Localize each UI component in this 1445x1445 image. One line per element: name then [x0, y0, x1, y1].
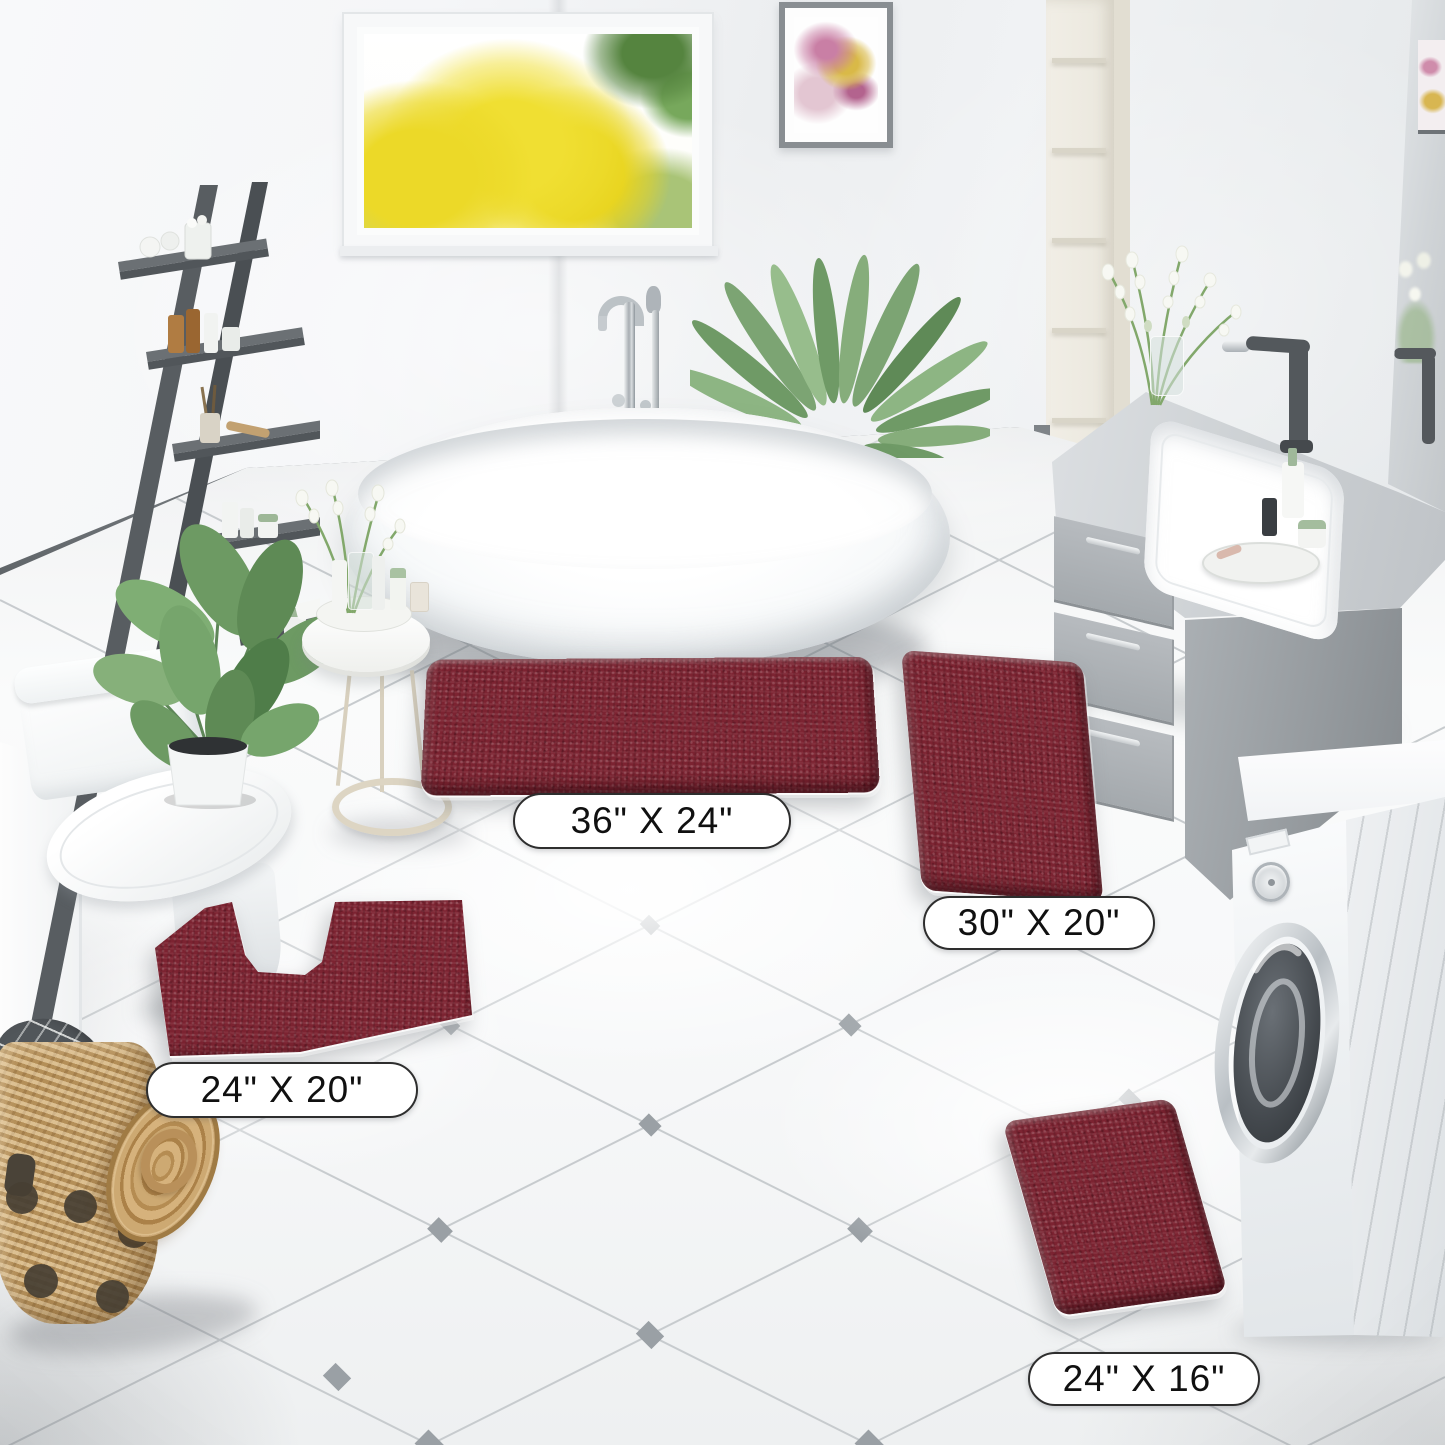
rug-36x24-surface — [420, 657, 880, 796]
rug-24x20-contour — [148, 888, 478, 1063]
cream-jar — [1298, 520, 1326, 548]
size-label-24x16: 24" X 16" — [1028, 1352, 1260, 1406]
size-label-36x24: 36" X 24" — [513, 793, 791, 849]
wall-art-painting — [794, 17, 878, 133]
window — [344, 14, 712, 248]
rug-24x20-surface — [148, 888, 478, 1063]
hand-shower-hose — [652, 310, 659, 422]
rug-30x20 — [901, 650, 1083, 888]
sink-faucet-body — [1289, 346, 1308, 448]
size-label-36x24-text: 36" X 24" — [571, 800, 734, 842]
plant-pot-pebbles — [169, 737, 247, 755]
size-label-30x20: 30" X 20" — [923, 896, 1155, 950]
mirror-faucet-reflection-body — [1422, 354, 1435, 444]
lotion-pump — [1288, 448, 1297, 466]
shelf-line — [1052, 58, 1106, 63]
washing-machine-side-panel — [1342, 795, 1445, 1337]
drawer-handle — [1086, 537, 1140, 555]
bathroom-product-scene: 36" X 24" 30" X 20" 24" X 20" 24" X 16" — [0, 0, 1445, 1445]
shelf-line — [1052, 418, 1106, 423]
table-vase — [348, 552, 374, 610]
size-label-24x20-text: 24" X 20" — [201, 1069, 364, 1111]
vanity-vase — [1150, 336, 1184, 396]
tub-faucet-outlet — [598, 316, 607, 331]
basket-dot — [96, 1280, 129, 1313]
perfume-bottle — [410, 582, 429, 612]
dark-bottle — [1262, 498, 1277, 536]
wall-art-frame — [779, 2, 893, 148]
window-sill — [340, 246, 718, 256]
shelf-line — [1052, 148, 1106, 153]
toiletry-pump-bottle — [390, 568, 406, 610]
bathtub — [342, 408, 950, 666]
rug-30x20-surface — [901, 650, 1104, 903]
window-view-autumn-trees — [357, 27, 699, 235]
hand-shower-head — [646, 286, 661, 313]
toiletry-bottle — [372, 556, 385, 610]
tub-faucet-valve — [612, 394, 625, 407]
rug-24x16 — [1002, 1122, 1174, 1322]
basket-dot — [64, 1190, 97, 1223]
size-label-30x20-text: 30" X 20" — [958, 902, 1121, 944]
toiletry-bottle — [332, 560, 347, 610]
tub-faucet-pipe — [624, 302, 635, 424]
washer-door — [1205, 915, 1355, 1175]
drawer-handle — [1086, 729, 1140, 747]
basket-dot — [6, 1182, 38, 1214]
lotion-bottle — [1282, 462, 1304, 518]
mirror-art-reflection — [1418, 40, 1445, 134]
size-label-24x16-text: 24" X 16" — [1063, 1358, 1226, 1400]
basket-dot — [24, 1264, 58, 1298]
vanity-tray — [1202, 542, 1320, 584]
table-leg — [380, 672, 384, 792]
palm-plant — [690, 148, 990, 458]
rug-36x24 — [424, 656, 876, 794]
size-label-24x20: 24" X 20" — [146, 1062, 418, 1118]
drawer-handle — [1086, 633, 1140, 651]
bathtub-rim — [358, 419, 932, 569]
ladder-tier-3 — [172, 385, 320, 462]
washer-dial — [1252, 862, 1290, 902]
